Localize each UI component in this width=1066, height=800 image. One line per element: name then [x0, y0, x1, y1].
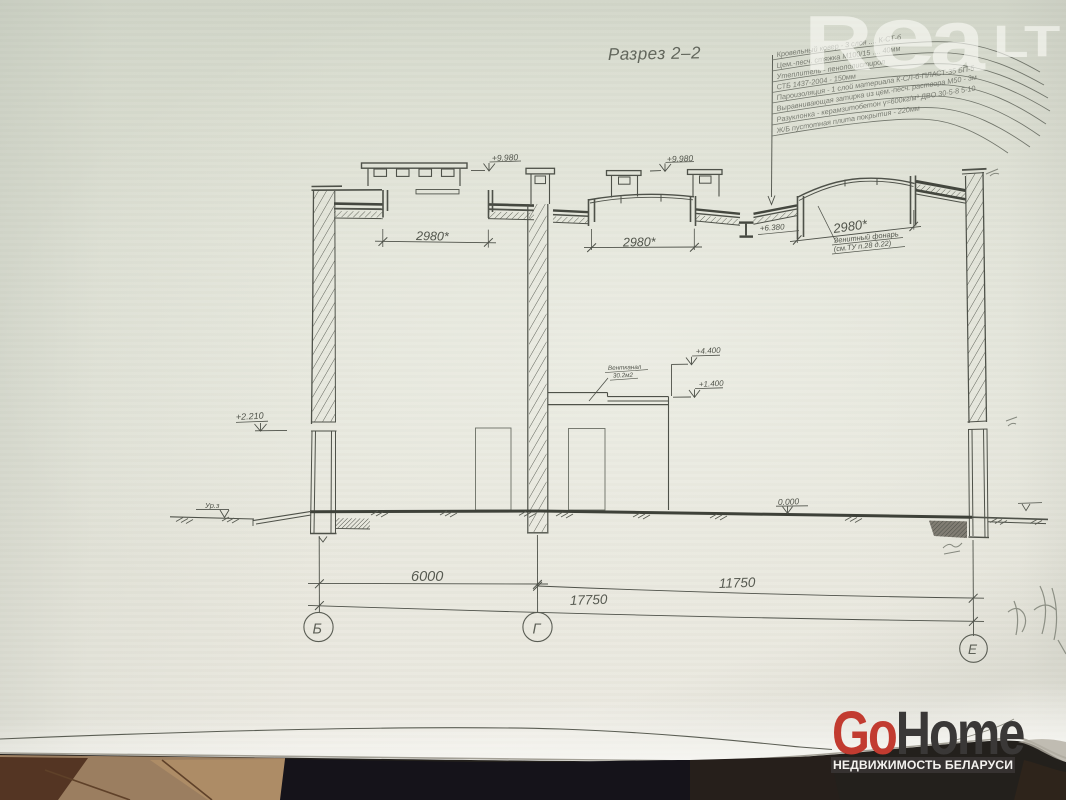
svg-text:2980*: 2980* [415, 229, 450, 244]
svg-text:+6.380: +6.380 [760, 222, 786, 233]
svg-text:+9.980: +9.980 [667, 153, 694, 164]
svg-text:Г: Г [533, 622, 542, 638]
svg-text:Ур.з: Ур.з [204, 501, 220, 510]
svg-text:0.000: 0.000 [778, 496, 800, 507]
svg-text:6000: 6000 [411, 569, 443, 585]
svg-text:+9.980: +9.980 [492, 152, 519, 163]
svg-text:+1.400: +1.400 [699, 379, 725, 389]
svg-text:Е: Е [968, 642, 978, 657]
svg-text:+2.210: +2.210 [236, 411, 264, 422]
svg-text:2980*: 2980* [622, 235, 657, 250]
svg-text:11750: 11750 [719, 575, 757, 591]
svg-text:Вентканал: Вентканал [608, 364, 642, 372]
svg-text:Разрез 2–2: Разрез 2–2 [608, 43, 701, 64]
svg-text:17750: 17750 [570, 592, 609, 608]
svg-text:Б: Б [313, 622, 322, 638]
svg-text:+4.400: +4.400 [696, 346, 722, 356]
